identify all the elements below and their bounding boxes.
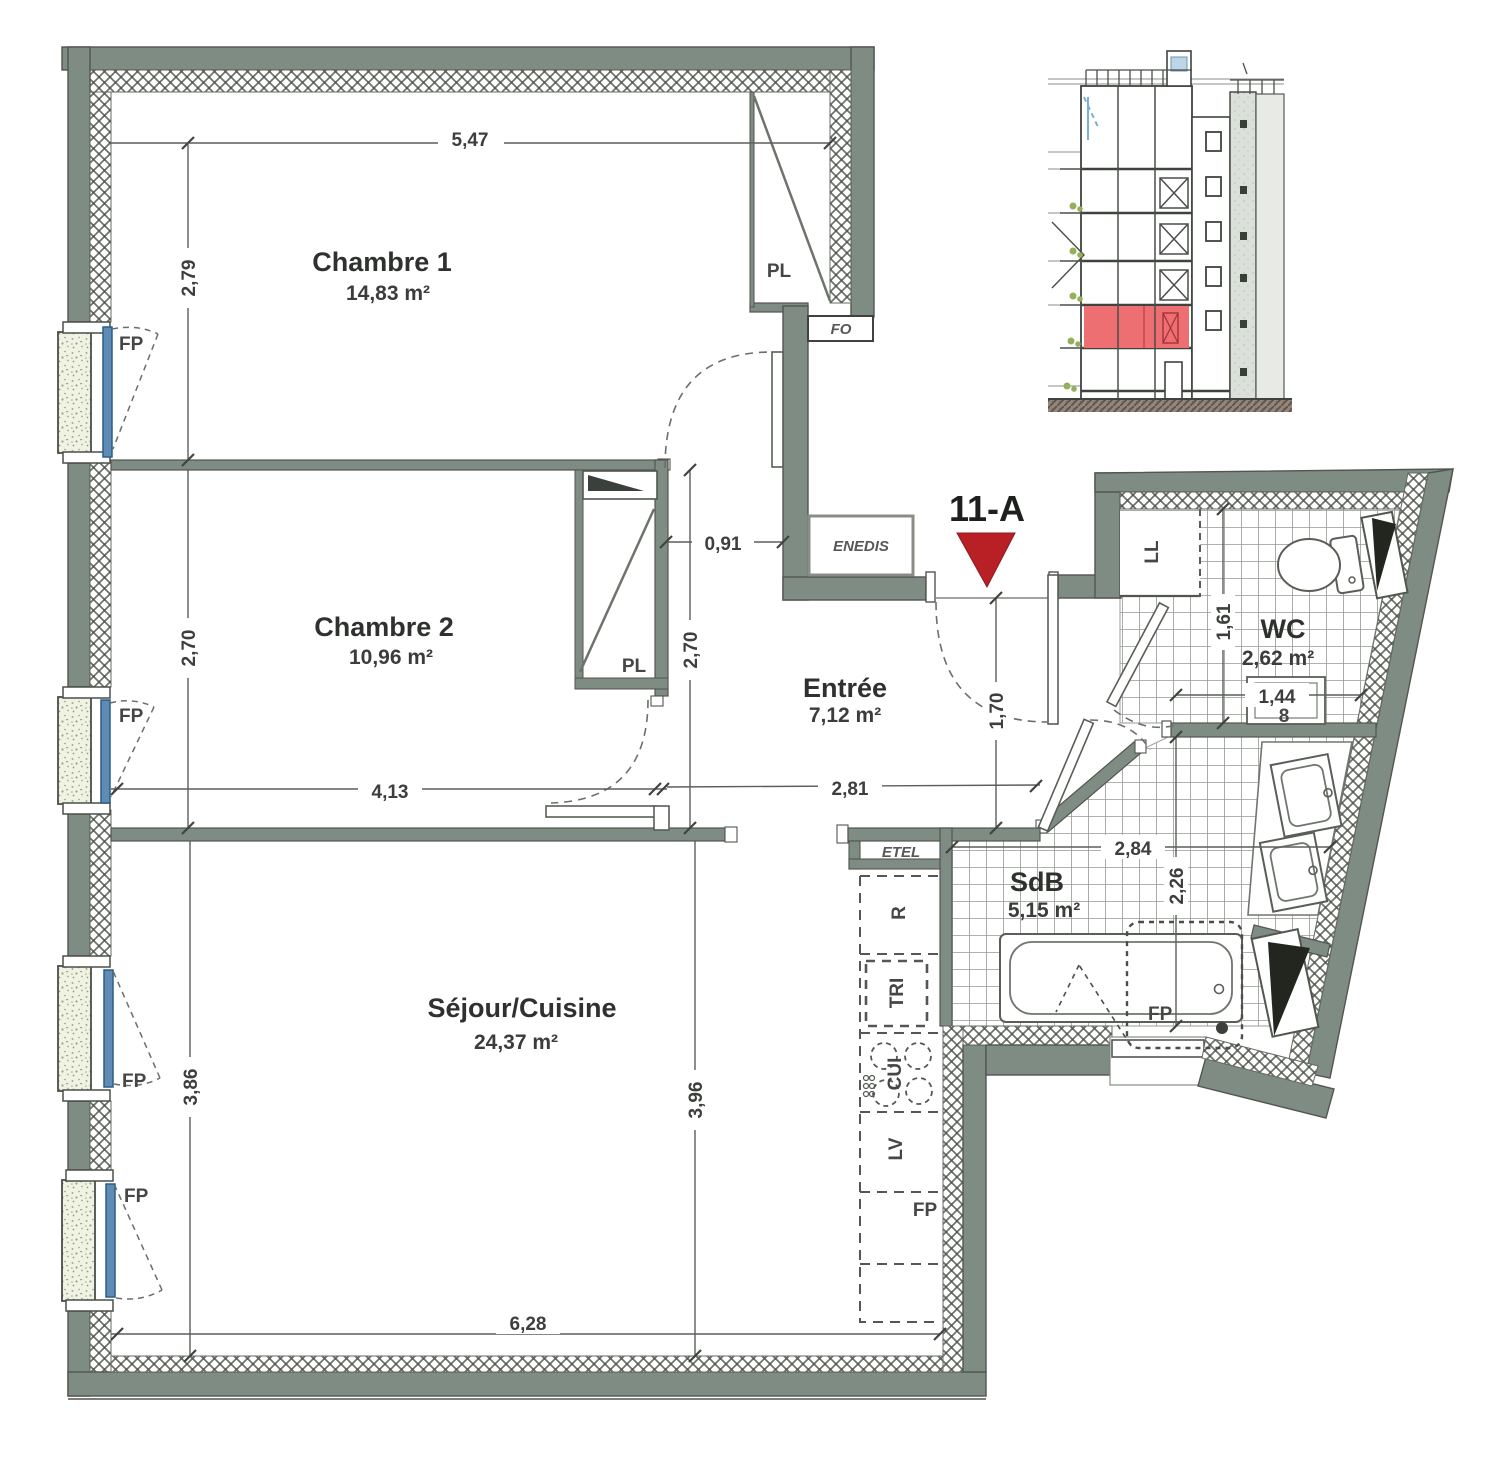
- svg-text:R: R: [889, 906, 910, 920]
- svg-text:2,70: 2,70: [179, 630, 200, 667]
- svg-text:Chambre 1: Chambre 1: [312, 247, 452, 277]
- svg-text:3,86: 3,86: [181, 1069, 202, 1106]
- svg-text:PL: PL: [622, 656, 647, 677]
- svg-text:1,70: 1,70: [987, 693, 1008, 730]
- svg-text:Entrée: Entrée: [803, 673, 887, 703]
- svg-text:8: 8: [1279, 706, 1290, 727]
- svg-text:11-A: 11-A: [949, 488, 1025, 529]
- svg-text:5,47: 5,47: [452, 130, 489, 151]
- svg-text:Chambre 2: Chambre 2: [314, 612, 454, 642]
- svg-text:FP: FP: [122, 1071, 147, 1092]
- svg-text:FO: FO: [831, 321, 852, 338]
- svg-text:FP: FP: [119, 334, 144, 355]
- svg-text:FP: FP: [119, 706, 144, 727]
- svg-text:4,13: 4,13: [372, 782, 409, 803]
- svg-text:5,15 m²: 5,15 m²: [1008, 899, 1080, 922]
- svg-text:TRI: TRI: [887, 978, 908, 1009]
- svg-text:6,28: 6,28: [510, 1314, 547, 1335]
- svg-text:SdB: SdB: [1010, 867, 1064, 897]
- svg-text:PL: PL: [767, 261, 792, 282]
- svg-text:CUI: CUI: [885, 1058, 906, 1091]
- svg-text:2,81: 2,81: [832, 779, 869, 800]
- svg-text:LL: LL: [1142, 540, 1163, 564]
- svg-text:2,84: 2,84: [1115, 839, 1152, 860]
- svg-text:ETEL: ETEL: [882, 844, 920, 861]
- svg-text:2,79: 2,79: [179, 260, 200, 297]
- svg-text:1,61: 1,61: [1214, 603, 1235, 640]
- svg-text:0,91: 0,91: [705, 534, 742, 555]
- svg-text:24,37 m²: 24,37 m²: [474, 1031, 558, 1054]
- svg-text:Séjour/Cuisine: Séjour/Cuisine: [427, 993, 616, 1023]
- svg-text:FP: FP: [124, 1186, 149, 1207]
- svg-text:LV: LV: [886, 1137, 907, 1160]
- svg-text:FP: FP: [1148, 1004, 1173, 1025]
- svg-text:14,83 m²: 14,83 m²: [346, 282, 430, 305]
- svg-text:FP: FP: [913, 1200, 938, 1221]
- svg-text:1,44: 1,44: [1259, 687, 1296, 708]
- svg-text:ENEDIS: ENEDIS: [833, 538, 889, 555]
- svg-text:2,62 m²: 2,62 m²: [1242, 647, 1314, 670]
- svg-text:3,96: 3,96: [686, 1082, 707, 1119]
- svg-text:10,96 m²: 10,96 m²: [349, 646, 433, 669]
- svg-text:2,26: 2,26: [1167, 868, 1188, 905]
- svg-text:7,12 m²: 7,12 m²: [809, 704, 881, 727]
- svg-text:WC: WC: [1261, 614, 1306, 644]
- svg-text:2,70: 2,70: [681, 632, 702, 669]
